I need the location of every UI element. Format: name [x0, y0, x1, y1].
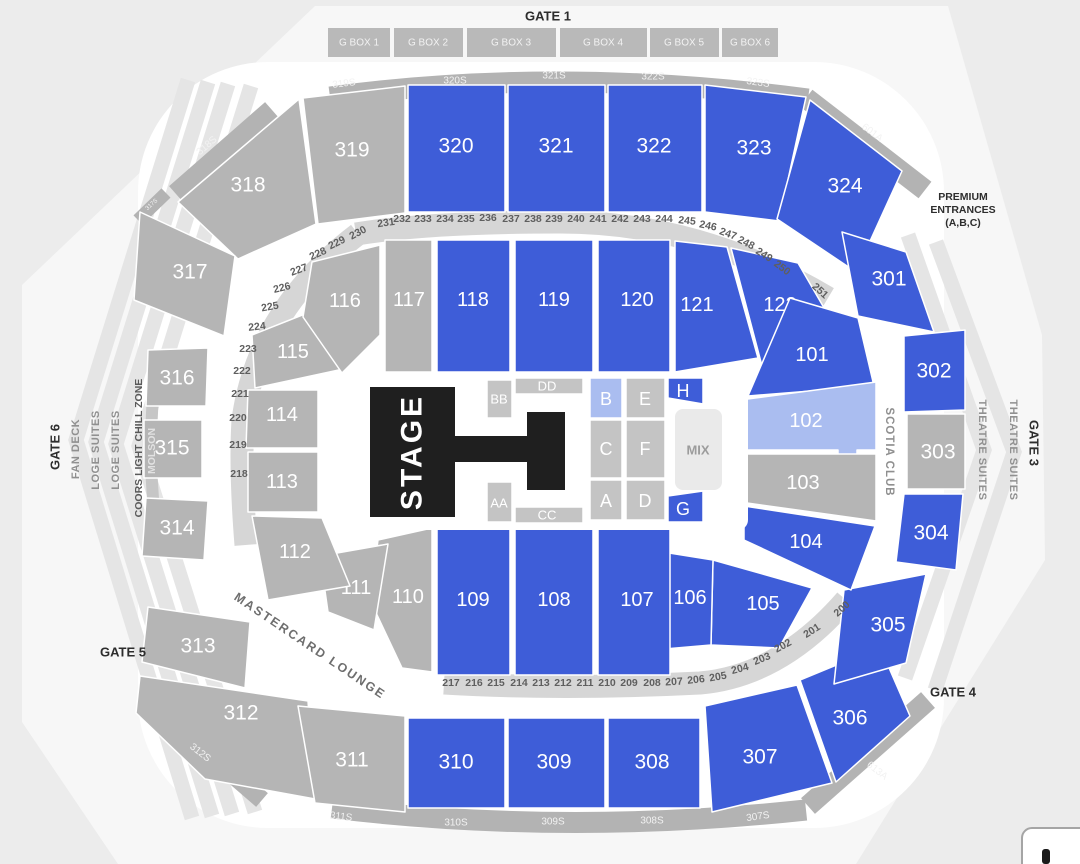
- section-label: 101: [795, 344, 828, 366]
- loge-suites-label: LOGE SUITES: [110, 410, 122, 489]
- ring-number: 237: [502, 213, 520, 225]
- section-label: 306: [832, 707, 867, 730]
- zone-label: DD: [538, 379, 557, 394]
- floor-zone-dd: DD: [515, 378, 583, 394]
- zone-label: CC: [538, 508, 557, 523]
- ring-number: 219: [229, 439, 247, 451]
- ring-number: 245: [678, 214, 697, 228]
- section-label: 317: [172, 261, 207, 284]
- gate1-label: GATE 1: [525, 9, 571, 24]
- floor-zone-c: C: [590, 420, 622, 478]
- section-label: 318: [230, 174, 265, 197]
- zone-label: H: [677, 381, 690, 401]
- section-label: 310: [438, 751, 473, 774]
- section-310[interactable]: 310: [408, 718, 505, 808]
- section-label: 109: [456, 589, 489, 611]
- zone-label: A: [600, 491, 612, 511]
- section-label: 113: [266, 471, 298, 493]
- zone-label: BB: [490, 392, 507, 407]
- section-label: 115: [277, 341, 309, 363]
- section-114: 114: [246, 390, 318, 448]
- section-label: 313: [180, 635, 215, 658]
- section-319: 319: [303, 86, 405, 224]
- section-label: 104: [789, 531, 822, 553]
- zone-label: B: [600, 389, 612, 409]
- premium-line2: ENTRANCES: [930, 204, 995, 216]
- section-302[interactable]: 302: [904, 330, 965, 412]
- section-label: 116: [329, 290, 361, 312]
- section-118[interactable]: 118: [437, 240, 510, 372]
- floor-zone-d: D: [626, 480, 665, 520]
- section-119[interactable]: 119: [515, 240, 593, 372]
- section-label: 303: [920, 441, 955, 464]
- section-label: 314: [159, 517, 194, 540]
- theatre-suites-label: THEATRE SUITES: [976, 400, 988, 501]
- gbox-label: G BOX 5: [664, 38, 704, 49]
- section-label: 302: [916, 360, 951, 383]
- premium-line3: (A,B,C): [945, 217, 981, 229]
- gbox-2: G BOX 2: [394, 28, 463, 57]
- band-label: 308S: [640, 816, 664, 827]
- section-label: 108: [537, 589, 570, 611]
- ring-number: 232: [393, 213, 411, 225]
- ring-number: 210: [598, 677, 616, 689]
- gate4-label: GATE 4: [930, 685, 977, 700]
- ring-number: 206: [687, 673, 706, 687]
- floor-zone-bb: BB: [487, 380, 512, 418]
- section-316: 316: [146, 348, 208, 406]
- ring-number: 243: [633, 213, 651, 225]
- section-label: 322: [636, 135, 671, 158]
- loge-suites-label: LOGE SUITES: [90, 410, 102, 489]
- gate6-label: GATE 6: [48, 424, 63, 470]
- section-label: 120: [620, 289, 653, 311]
- gbox-label: G BOX 3: [491, 38, 531, 49]
- zone-label: G: [676, 499, 690, 519]
- ring-number: 218: [230, 468, 248, 480]
- ring-number: 217: [442, 677, 460, 689]
- section-304[interactable]: 304: [896, 494, 963, 570]
- premium-line1: PREMIUM: [938, 191, 988, 203]
- ring-number: 211: [577, 677, 594, 689]
- gbox-label: G BOX 4: [583, 38, 623, 49]
- ring-number: 207: [665, 676, 683, 689]
- section-label: 309: [536, 751, 571, 774]
- floor-zone-cc: CC: [515, 507, 583, 523]
- seat-map[interactable]: 320 321 322 323 324 319 318 317 316 315 …: [0, 0, 1080, 864]
- coors-chill-zone-label: COORS LIGHT CHILL ZONE: [133, 379, 145, 518]
- floor-zone-b[interactable]: B: [590, 378, 622, 418]
- gbox-3: G BOX 3: [467, 28, 556, 57]
- section-label: 321: [538, 135, 573, 158]
- section-label: 307: [742, 746, 777, 769]
- floor-zone-g[interactable]: G: [668, 491, 703, 522]
- section-label: 301: [871, 268, 906, 291]
- section-label: 316: [159, 367, 194, 390]
- section-label: 305: [870, 614, 905, 637]
- ring-number: 222: [233, 365, 251, 377]
- section-label: 118: [457, 289, 489, 311]
- ring-number: 240: [567, 213, 585, 225]
- section-label: 315: [154, 437, 189, 460]
- gbox-row: G BOX 1 G BOX 2 G BOX 3 G BOX 4 G BOX 5 …: [328, 28, 778, 57]
- section-label: 103: [786, 472, 819, 494]
- section-108[interactable]: 108: [515, 528, 593, 675]
- section-label: 106: [673, 587, 706, 609]
- section-label: 112: [279, 541, 311, 563]
- gbox-1: G BOX 1: [328, 28, 390, 57]
- section-label: 312: [223, 702, 258, 725]
- section-113: 113: [248, 452, 318, 512]
- gbox-label: G BOX 6: [730, 38, 770, 49]
- ring-number: 221: [231, 388, 249, 400]
- section-label: 114: [266, 404, 298, 426]
- section-321[interactable]: 321: [508, 85, 605, 212]
- section-label: 323: [736, 137, 771, 160]
- section-label: 121: [680, 294, 713, 316]
- gbox-6: G BOX 6: [722, 28, 778, 57]
- floor-zone-mix: MIX: [675, 409, 722, 490]
- section-label: 320: [438, 135, 473, 158]
- section-314: 314: [142, 498, 208, 560]
- zone-label: AA: [490, 496, 508, 511]
- control-glyph-icon: [1042, 849, 1050, 864]
- zone-label: F: [640, 439, 651, 459]
- section-label: 319: [334, 139, 369, 162]
- ring-number: 238: [524, 213, 542, 225]
- ring-number: 239: [545, 213, 563, 225]
- section-label: 304: [913, 522, 948, 545]
- ring-number: 241: [589, 213, 607, 225]
- section-label: 110: [392, 586, 424, 608]
- section-label: 311: [335, 749, 368, 772]
- section-label: 324: [827, 175, 862, 198]
- section-120[interactable]: 120: [598, 240, 670, 372]
- section-label: 119: [538, 289, 570, 311]
- band-label: 321S: [542, 71, 566, 82]
- floor-zone-a: A: [590, 480, 622, 520]
- ring-number: 234: [436, 213, 454, 225]
- section-320[interactable]: 320: [408, 85, 505, 212]
- section-label: 308: [634, 751, 669, 774]
- ring-number: 242: [611, 213, 629, 225]
- section-109[interactable]: 109: [437, 528, 510, 675]
- section-label: 105: [746, 593, 779, 615]
- ring-number: 212: [554, 677, 572, 689]
- zone-label: D: [639, 491, 652, 511]
- gbox-label: G BOX 1: [339, 38, 379, 49]
- band-label: 320S: [443, 76, 467, 87]
- ring-number: 213: [532, 677, 550, 689]
- floor-zone-aa: AA: [487, 482, 512, 522]
- ring-number: 223: [239, 343, 257, 355]
- gbox-4: G BOX 4: [560, 28, 647, 57]
- section-label: 107: [620, 589, 653, 611]
- ring-number: 209: [620, 677, 638, 689]
- floor-zone-e: E: [626, 378, 665, 418]
- stage-label: STAGE: [396, 394, 429, 510]
- theatre-suites-label: THEATRE SUITES: [1007, 400, 1019, 501]
- ring-number: 214: [510, 677, 528, 689]
- section-label: 117: [393, 289, 425, 311]
- ring-number: 224: [248, 320, 267, 334]
- ring-number: 208: [643, 677, 661, 689]
- ring-number: 220: [229, 412, 247, 424]
- section-label: 102: [789, 410, 822, 432]
- band-label: 309S: [541, 817, 565, 828]
- floor: STAGE BB DD AA CC B E H C F A D G MIX: [362, 372, 748, 530]
- section-308[interactable]: 308: [608, 718, 700, 808]
- section-117: 117: [385, 240, 432, 372]
- zone-label: E: [639, 389, 651, 409]
- ring-number: 235: [457, 213, 475, 225]
- seat-map-canvas: 320 321 322 323 324 319 318 317 316 315 …: [0, 0, 1080, 864]
- ring-number: 236: [479, 212, 497, 224]
- scotia-club-label: SCOTIA CLUB: [883, 407, 895, 496]
- gbox-label: G BOX 2: [408, 38, 448, 49]
- fan-deck-label: FAN DECK: [70, 419, 82, 479]
- gbox-5: G BOX 5: [650, 28, 719, 57]
- band-label: 322S: [641, 72, 665, 83]
- molson-label: MOLSON: [146, 428, 158, 474]
- ring-number: 215: [487, 677, 505, 689]
- section-322[interactable]: 322: [608, 85, 702, 212]
- map-control-button[interactable]: [1022, 828, 1080, 864]
- floor-zone-f: F: [626, 420, 665, 478]
- mix-label: MIX: [686, 443, 709, 458]
- gate5-label: GATE 5: [100, 645, 146, 660]
- section-309[interactable]: 309: [508, 718, 605, 808]
- section-107[interactable]: 107: [598, 528, 670, 675]
- ring-number: 233: [414, 213, 432, 225]
- band-label: 310S: [444, 818, 468, 829]
- section-311: 311: [298, 706, 405, 812]
- gate3-label: GATE 3: [1027, 420, 1042, 466]
- zone-label: C: [600, 439, 613, 459]
- ring-number: 216: [465, 677, 483, 689]
- ring-number: 244: [655, 213, 673, 225]
- section-303: 303: [907, 414, 965, 489]
